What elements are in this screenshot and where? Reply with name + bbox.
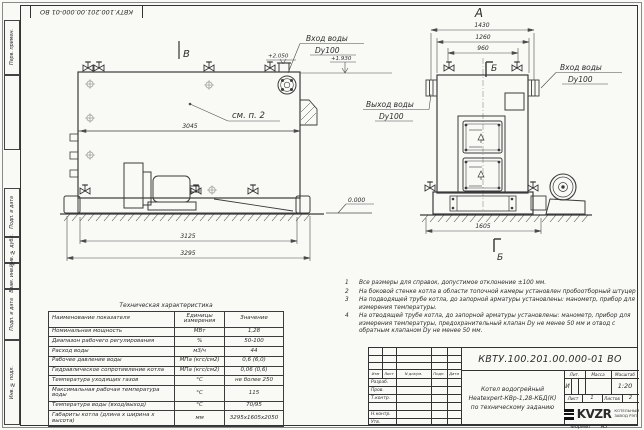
sheet-value: 1: [582, 394, 602, 402]
valve-symbol: [94, 62, 104, 71]
front-inlet-label: Вход воды: [560, 63, 602, 72]
fan-blower: [531, 174, 585, 214]
burner-assembly: [124, 163, 199, 210]
scale-label: Масштаб: [611, 370, 639, 378]
scale-value: 1:20: [611, 378, 639, 394]
ground-hatch-left: [64, 214, 310, 221]
row-tkontr: Т.контр.: [369, 394, 398, 402]
doc-name-line2: Heatexpert-КВр-1,28-КБД(К): [469, 394, 557, 403]
ground-hatch-right: [422, 215, 588, 222]
level-zero-mark: 0.000: [348, 197, 365, 204]
section-mark-b-bottom: Б: [497, 253, 503, 263]
elev-2050: +2.050: [268, 54, 289, 60]
dim-1260: 1260: [475, 34, 490, 41]
title-block-designation: КВТУ.100.201.00.000-01 ВО: [461, 348, 639, 370]
table-row: Температура уходящих газов°Сне более 250: [49, 376, 284, 386]
valve-symbol: [204, 62, 214, 71]
col-data: Дата: [447, 369, 461, 378]
sheet-label: Лист: [564, 394, 582, 402]
company-name: КОТЕЛЬНЫЙ ЗАВОД РЭП: [614, 409, 639, 419]
side-bracket: [70, 170, 78, 177]
inlet-flange-right: [528, 80, 539, 96]
side-bracket: [70, 134, 78, 141]
front-inlet-dn: Dy100: [568, 75, 593, 84]
side-inlet-dn: Dy100: [315, 46, 340, 55]
col-ndocum: N докум.: [396, 369, 431, 378]
boiler-door-lower: [463, 158, 502, 191]
valve-symbol: [83, 62, 93, 71]
side-view-dimensions: [67, 41, 392, 261]
sheets-value: 2: [622, 394, 639, 402]
row-utv: Утв.: [369, 418, 398, 426]
crosshair-mark: [207, 185, 217, 195]
title-block: КВТУ.100.201.00.000-01 ВО Котел водогрей…: [368, 347, 638, 425]
elev-1930: +1.930: [331, 56, 352, 62]
crosshair-mark: [85, 113, 95, 123]
boiler-front-view: [420, 58, 592, 222]
table-row: Диапазон рабочего регулирования%50-100: [49, 337, 284, 347]
dim-3045: 3045: [182, 123, 197, 130]
frame-brace: [214, 199, 293, 211]
company-logo-block: KVZR КОТЕЛЬНЫЙ ЗАВОД РЭП: [564, 402, 639, 426]
valve-symbol: [444, 62, 454, 71]
side-bracket: [70, 152, 78, 159]
col-list: Лист: [382, 369, 396, 378]
sight-glass: [505, 93, 524, 110]
mass-label: Масса: [585, 370, 611, 378]
inlet-flange-circle: [278, 76, 296, 94]
doc-name-line1: Котел водогрейный: [481, 385, 544, 394]
valve-symbol: [80, 185, 90, 194]
crosshair-mark: [85, 79, 95, 89]
dim-960: 960: [477, 45, 489, 52]
dim-3125: 3125: [180, 233, 195, 240]
kvzr-logo-word: KVZR: [577, 407, 612, 421]
note-item: 1Все размеры для справок, допустимое отк…: [345, 280, 636, 287]
boiler-side-view: [60, 62, 324, 221]
doc-name-line3: по техническому заданию: [471, 403, 554, 412]
lit-label: Лит.: [564, 370, 585, 378]
format-label: Формат: [571, 424, 591, 430]
table-row: Рабочее давление водыМПа (кгс/см2)0,6 (6…: [49, 356, 284, 366]
spec-table: Наименование показателя Единицы измерени…: [48, 311, 284, 427]
dim-1605: 1605: [475, 223, 490, 230]
kvzr-logo-icon: [564, 409, 574, 420]
table-row: Гидравлическое сопротивление котлаМПа (к…: [49, 366, 284, 376]
col-izm: Изм: [369, 369, 382, 378]
valve-symbol: [528, 182, 538, 191]
spec-header-units: Единицы измерения: [175, 312, 225, 328]
row-razrab: Разраб.: [369, 378, 398, 386]
valve-symbol: [512, 62, 522, 71]
spec-header-row: Наименование показателя Единицы измерени…: [49, 312, 284, 328]
section-mark-b-top: Б: [491, 64, 497, 74]
outlet-elbow: [300, 100, 317, 125]
side-inlet-label: Вход воды: [306, 34, 348, 43]
crosshair-mark: [204, 80, 214, 90]
front-outlet-dn: Dy100: [379, 112, 404, 121]
table-row: Габариты котла (длина х ширина х высота)…: [49, 411, 284, 427]
spec-table-title: Техническая характеристика: [48, 302, 284, 309]
format-note: Формат А3: [540, 424, 638, 430]
dim-3295: 3295: [180, 250, 195, 257]
boiler-body-side: [78, 72, 300, 198]
col-podp: Подп.: [431, 369, 447, 378]
valve-symbol: [425, 182, 435, 191]
company-name-line2: ЗАВОД РЭП: [614, 413, 637, 418]
front-outlet-label: Выход воды: [366, 100, 414, 109]
outlet-flange-left: [426, 80, 437, 96]
note-item: 4На отводящей трубе котла, до запорной а…: [345, 313, 636, 335]
view-label-a: А: [474, 6, 483, 20]
crosshair-mark: [85, 150, 95, 160]
sheets-label: Листов: [602, 394, 622, 402]
note-item: 2На боковой стенке котла в области топоч…: [345, 289, 636, 296]
valve-symbol: [265, 62, 275, 71]
technical-characteristics: Техническая характеристика Наименование …: [48, 302, 284, 427]
drawing-sheet: КВТУ.100.201.00.000-01 ВО Перв. примен. …: [0, 0, 644, 430]
table-row: Температура воды (вход/выход)°С70/95: [49, 401, 284, 411]
drawing-notes: 1Все размеры для справок, допустимое отк…: [345, 280, 636, 337]
inlet-nozzle-stub: [279, 63, 289, 72]
table-row: Расход водым3/ч44: [49, 347, 284, 357]
document-name: Котел водогрейный Heatexpert-КВр-1,28-КБ…: [461, 370, 564, 426]
row-nkontr: Н.контр.: [369, 410, 398, 418]
valve-symbol: [248, 185, 258, 194]
boiler-door-upper: [463, 121, 502, 153]
note-item: 3На подводящей трубе котла, до запорной …: [345, 297, 636, 311]
door-panel: [458, 116, 505, 192]
spec-header-name: Наименование показателя: [49, 312, 175, 328]
table-row: Номинальная мощностьМВт1,28: [49, 327, 284, 337]
see-note-2-label: см. п. 2: [232, 111, 265, 121]
row-prov: Пров.: [369, 386, 398, 394]
view-mark-v: В: [183, 49, 190, 60]
table-row: Максимальная рабочая температура воды°С1…: [49, 386, 284, 402]
spec-header-value: Значение: [225, 312, 284, 328]
dim-1430: 1430: [474, 22, 489, 29]
format-value: А3: [601, 424, 608, 430]
lit-value: И: [564, 378, 571, 394]
